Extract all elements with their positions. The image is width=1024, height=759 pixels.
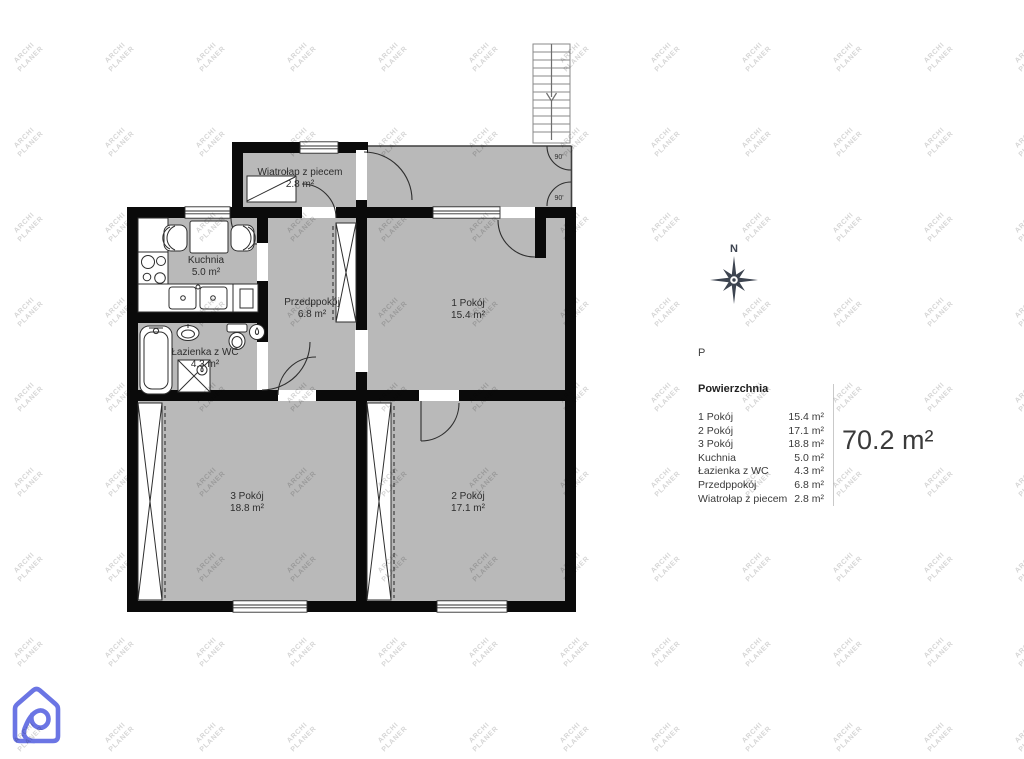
kitchen-table xyxy=(190,221,228,253)
room2-door-opening xyxy=(419,390,459,401)
sink-bowl xyxy=(169,287,196,309)
room-label-pokoj1: 1 Pokój 15.4 m² xyxy=(451,298,485,322)
staircase xyxy=(533,44,570,143)
room-name: Przedppokój xyxy=(284,297,340,309)
bathtub xyxy=(140,326,172,394)
brand-logo-icon xyxy=(15,689,58,741)
room-area: 17.1 m² xyxy=(451,503,485,515)
room-area: 2.8 m² xyxy=(257,179,342,191)
compass-north-label: N xyxy=(730,243,738,255)
room-name: 1 Pokój xyxy=(451,298,485,310)
hall-room1-opening xyxy=(355,330,368,372)
room-label-przedpokoj: Przedppokój 6.8 m² xyxy=(284,297,340,321)
landing-corridor-floor xyxy=(367,146,572,207)
kitchen-door-opening xyxy=(257,243,268,281)
entrance-door-opening xyxy=(356,150,367,200)
wiatrolap-hall-opening xyxy=(302,207,336,218)
room-name: 3 Pokój xyxy=(230,491,264,503)
sink-bowl xyxy=(200,287,227,309)
room1-door-opening xyxy=(498,207,535,218)
water-heater xyxy=(250,325,265,340)
room-label-lazienka: Łazienka z WC 4.3 m² xyxy=(171,347,238,371)
room-name: 2 Pokój xyxy=(451,491,485,503)
compass-rose: N xyxy=(710,243,758,304)
door-angle-label: 90' xyxy=(554,154,563,161)
room1-window xyxy=(433,207,500,218)
floor-plan-drawing: 90' 90' 90' xyxy=(0,0,1024,750)
room-name: Kuchnia xyxy=(188,255,224,267)
room-label-pokoj3: 3 Pokój 18.8 m² xyxy=(230,491,264,515)
floor-plan-page: { "plan": { "rooms": [ {"name": "Wiatroł… xyxy=(0,0,1024,750)
toilet xyxy=(227,324,247,350)
bathroom-door-opening xyxy=(257,342,268,390)
room-area: 15.4 m² xyxy=(451,310,485,322)
room-name: Łazienka z WC xyxy=(171,347,238,359)
room2-wardrobe xyxy=(367,403,394,600)
kitchen-chair xyxy=(231,225,255,251)
door-angle-label: 90' xyxy=(554,195,563,202)
kitchen-window xyxy=(185,207,230,218)
room-label-pokoj2: 2 Pokój 17.1 m² xyxy=(451,491,485,515)
room-label-kuchnia: Kuchnia 5.0 m² xyxy=(188,255,224,279)
room-area: 4.3 m² xyxy=(171,359,238,371)
kitchen-chair xyxy=(163,225,187,251)
room2-window xyxy=(437,601,507,612)
room-area: 6.8 m² xyxy=(284,309,340,321)
room-name: Wiatrołap z piecem xyxy=(257,167,342,179)
room3-window xyxy=(233,601,307,612)
room-area: 5.0 m² xyxy=(188,267,224,279)
room-area: 18.8 m² xyxy=(230,503,264,515)
wiatrolap-window xyxy=(300,142,338,153)
room3-door-opening xyxy=(278,390,316,401)
room3-wardrobe xyxy=(138,403,165,600)
room-label-wiatrolap: Wiatrołap z piecem 2.8 m² xyxy=(257,167,342,191)
